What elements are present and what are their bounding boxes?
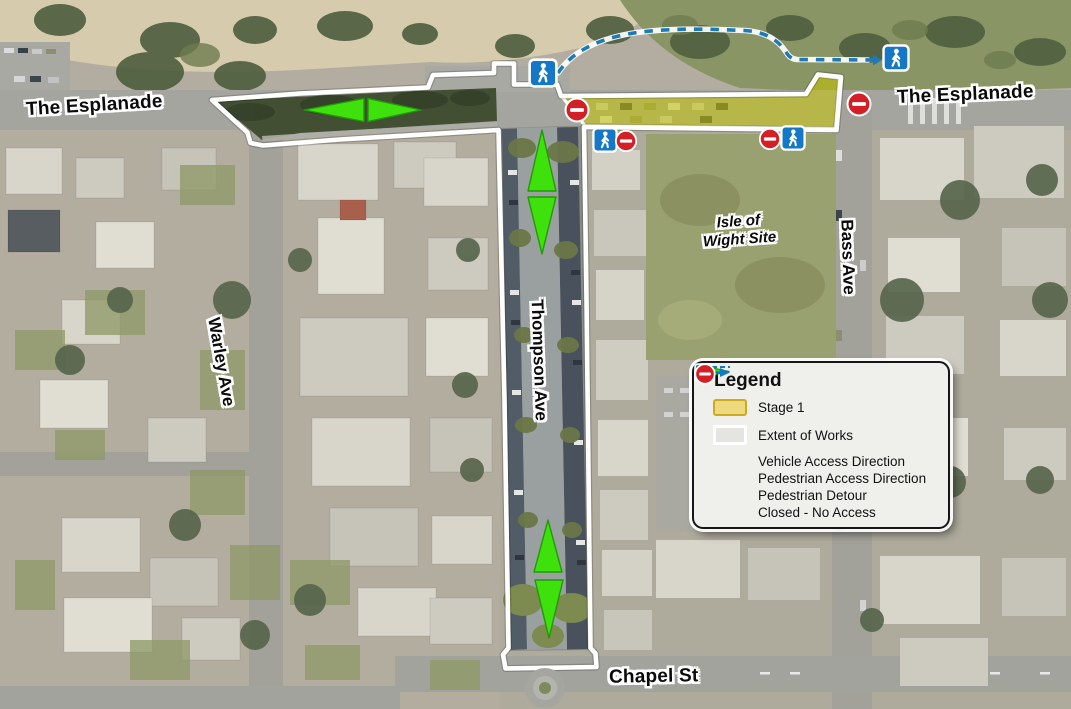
legend-label: Extent of Works xyxy=(758,428,853,443)
legend-item-extent-of-works: Extent of Works xyxy=(708,425,938,445)
pedestrian-icon xyxy=(530,60,557,87)
legend-item-pedestrian-detour: Pedestrian Detour xyxy=(708,488,938,503)
no-entry-icon xyxy=(848,93,871,116)
legend-title: Legend xyxy=(714,370,938,392)
pedestrian-icon xyxy=(884,46,909,71)
pedestrian-icon xyxy=(593,128,616,151)
legend-label: Pedestrian Detour xyxy=(758,488,867,503)
legend-label: Closed - No Access xyxy=(758,505,876,520)
isle-line-2: Wight Site xyxy=(702,228,776,250)
legend-panel: Legend Stage 1 Extent of Works Vehicle A… xyxy=(692,361,950,529)
legend-item-pedestrian-access: Pedestrian Access Direction xyxy=(708,471,938,486)
legend-label: Pedestrian Access Direction xyxy=(758,471,926,486)
legend-item-vehicle-access: Vehicle Access Direction xyxy=(708,454,938,469)
traffic-works-map: The Esplanade The Esplanade Warley Ave T… xyxy=(0,0,1071,709)
label-chapel-st: Chapel St xyxy=(609,665,699,689)
legend-item-stage1: Stage 1 xyxy=(708,399,938,416)
no-entry-icon xyxy=(616,131,636,151)
label-isle-of-wight-site: Isle of Wight Site xyxy=(685,209,793,252)
label-thompson-ave: Thompson Ave xyxy=(527,299,551,421)
legend-label: Stage 1 xyxy=(758,400,805,415)
extent-swatch-icon xyxy=(713,425,747,445)
no-entry-icon xyxy=(760,129,780,149)
no-entry-icon xyxy=(694,363,716,385)
legend-item-closed-no-access: Closed - No Access xyxy=(708,505,938,520)
roundabout xyxy=(525,668,565,708)
stage1-swatch-icon xyxy=(713,399,747,416)
legend-label: Vehicle Access Direction xyxy=(758,454,905,469)
no-entry-icon xyxy=(566,99,589,122)
isle-line-1: Isle of xyxy=(716,212,760,232)
label-bass-ave: Bass Ave xyxy=(836,219,859,295)
pedestrian-icon xyxy=(781,126,804,149)
